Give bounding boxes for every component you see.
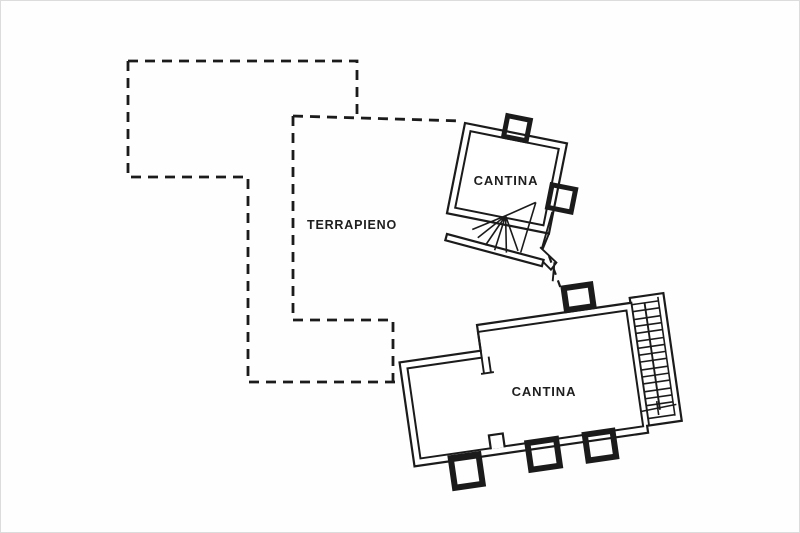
upper-right-buttress — [545, 182, 579, 215]
terrapieno-label: TERRAPIENO — [307, 218, 397, 232]
floor-plan-canvas: TERRAPIENO CANTINA CANTINA — [0, 0, 800, 533]
pilaster-bump — [489, 433, 505, 449]
upper-cantina-label: CANTINA — [474, 173, 539, 188]
page-border — [1, 1, 800, 533]
dashed-terrapieno-boundary — [293, 116, 393, 383]
upper-top-buttress — [501, 113, 534, 144]
dashed-link-to-upper-building — [293, 116, 462, 121]
lower-cantina-label: CANTINA — [512, 384, 577, 399]
lower-top-buttress — [560, 281, 597, 313]
dashed-top-rectangle — [128, 61, 357, 116]
bottom-buttress-1 — [447, 451, 486, 491]
terrain-dashed-outline — [128, 61, 462, 383]
bottom-buttress-3 — [581, 427, 619, 464]
floor-plan-page: TERRAPIENO CANTINA CANTINA — [0, 0, 800, 533]
bottom-buttress-2 — [524, 435, 563, 473]
